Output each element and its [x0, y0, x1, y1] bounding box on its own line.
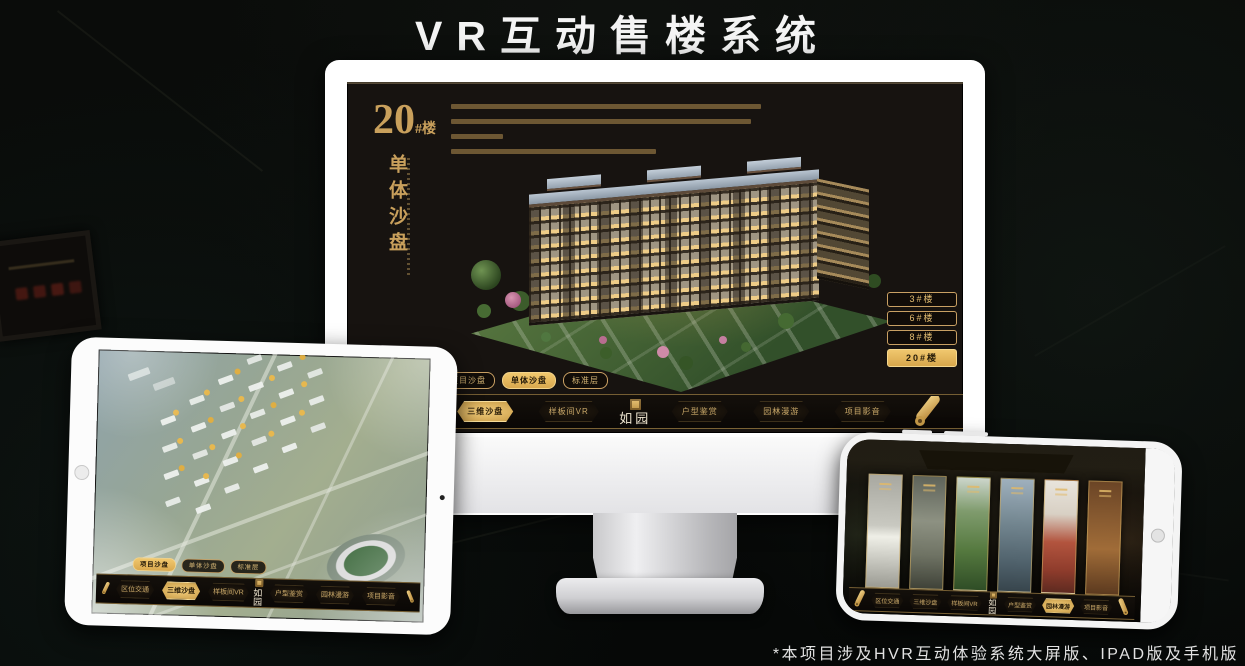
building-number: 20 — [373, 97, 415, 143]
ipad-camera-icon — [440, 495, 445, 500]
nav-item-project-media[interactable]: 项目影音 — [1077, 599, 1115, 615]
seal-stamp-icon — [256, 579, 264, 587]
project-logo[interactable]: 如园 — [619, 399, 651, 425]
scene-panel-ink-painting[interactable] — [865, 474, 903, 589]
scene-panel-gallery — [865, 474, 1122, 596]
floor-button-8[interactable]: 8#楼 — [887, 330, 957, 345]
building-subtitle-english — [407, 158, 410, 278]
floor-selector: 3#楼 6#楼 8#楼 20#楼 — [887, 292, 957, 371]
description-line — [451, 134, 503, 139]
phone-side-button[interactable] — [902, 430, 932, 435]
nav-item-location-traffic[interactable]: 区位交通 — [868, 592, 906, 608]
nav-item-garden-roam[interactable]: 园林漫游 — [1039, 597, 1077, 613]
scene-panel-interior[interactable] — [909, 475, 947, 590]
scroll-menu-icon[interactable] — [404, 584, 417, 610]
seal-stamp-icon — [630, 399, 641, 410]
footnote-text: *本项目涉及HVR互动体验系统大屏版、IPAD版及手机版 — [773, 640, 1239, 664]
ipad-home-button[interactable] — [74, 465, 89, 480]
nav-item-project-media[interactable]: 项目影音 — [830, 401, 896, 422]
project-logo[interactable]: 如园 — [984, 591, 1001, 616]
floor-button-3[interactable]: 3#楼 — [887, 292, 957, 307]
floor-button-6[interactable]: 6#楼 — [887, 311, 957, 326]
building-number-suffix: #楼 — [415, 122, 436, 137]
building-subtitle: 单体沙盘 — [383, 154, 410, 258]
tab-project-sandbox[interactable]: 项目沙盘 — [133, 557, 177, 572]
nav-item-3d-sandbox[interactable]: 三维沙盘 — [158, 581, 204, 600]
floor-button-20[interactable]: 20#楼 — [887, 349, 957, 367]
nav-item-showroom-vr[interactable]: 样板间VR — [944, 595, 985, 611]
nav-item-project-media[interactable]: 项目影音 — [358, 587, 404, 606]
scroll-menu-icon[interactable] — [1115, 596, 1132, 619]
monitor-stand-base — [556, 578, 764, 614]
tab-standard-floor[interactable]: 标准层 — [230, 560, 266, 575]
plaque-gold-line — [8, 259, 74, 270]
ipad-device: 项目沙盘 单体沙盘 标准层 区位交通 三维沙盘 样板间VR 如园 户 — [64, 337, 458, 636]
nav-item-3d-sandbox[interactable]: 三维沙盘 — [906, 593, 944, 609]
model-side-facade — [817, 178, 869, 289]
mode-tabs: 项目沙盘 单体沙盘 标准层 — [441, 372, 608, 389]
stage: VR互动售楼系统 20#楼 单体沙盘 — [0, 0, 1245, 666]
description-line — [451, 119, 751, 124]
nav-item-garden-roam[interactable]: 园林漫游 — [748, 401, 814, 422]
scene-panel-autumn[interactable] — [1041, 479, 1079, 594]
bg-award-plaque — [0, 230, 102, 342]
tab-single-sandbox[interactable]: 单体沙盘 — [181, 559, 225, 574]
building-3d-model[interactable] — [465, 142, 905, 397]
screen-top-hairline — [347, 82, 963, 84]
plaque-red-characters — [15, 287, 28, 300]
tab-single-sandbox[interactable]: 单体沙盘 — [502, 372, 556, 389]
nav-item-unit-gallery[interactable]: 户型鉴赏 — [1001, 596, 1039, 612]
scroll-menu-icon[interactable] — [100, 576, 113, 602]
model-trees-green — [471, 260, 501, 290]
bg-map-road — [1034, 245, 1226, 357]
nav-item-unit-gallery[interactable]: 户型鉴赏 — [266, 584, 312, 603]
scene-panel-building[interactable] — [997, 478, 1035, 593]
scroll-menu-icon[interactable] — [911, 396, 945, 428]
description-line — [451, 104, 761, 109]
nav-item-3d-sandbox[interactable]: 三维沙盘 — [452, 401, 518, 422]
project-logo-name: 如园 — [984, 599, 1001, 616]
scene-panel-garden[interactable] — [953, 476, 991, 591]
model-building-block — [529, 155, 819, 325]
scroll-menu-icon[interactable] — [851, 588, 868, 611]
smartphone-device: 区位交通 三维沙盘 样板间VR 如园 户型鉴赏 园林漫游 项目影音 — [835, 432, 1183, 631]
nav-item-showroom-vr[interactable]: 样板间VR — [534, 401, 604, 422]
phone-side-button[interactable] — [944, 431, 988, 436]
nav-item-showroom-vr[interactable]: 样板间VR — [204, 582, 253, 601]
tab-standard-floor[interactable]: 标准层 — [563, 372, 608, 389]
phone-screen: 区位交通 三维沙盘 样板间VR 如园 户型鉴赏 园林漫游 项目影音 — [842, 439, 1145, 622]
monitor-stand-neck — [593, 513, 737, 585]
project-logo[interactable]: 如园 — [252, 579, 266, 607]
scene-panel-shelves[interactable] — [1085, 480, 1123, 595]
model-trees-pink — [505, 292, 521, 308]
ipad-screen: 项目沙盘 单体沙盘 标准层 区位交通 三维沙盘 样板间VR 如园 户 — [91, 349, 430, 622]
project-logo-name: 如园 — [619, 412, 651, 425]
building-title: 20#楼 — [373, 96, 436, 144]
page-title: VR互动售楼系统 — [0, 2, 1245, 62]
project-logo-name: 如园 — [252, 589, 266, 607]
nav-item-location-traffic[interactable]: 区位交通 — [112, 580, 158, 599]
nav-item-garden-roam[interactable]: 园林漫游 — [312, 585, 358, 604]
nav-item-unit-gallery[interactable]: 户型鉴赏 — [667, 401, 733, 422]
